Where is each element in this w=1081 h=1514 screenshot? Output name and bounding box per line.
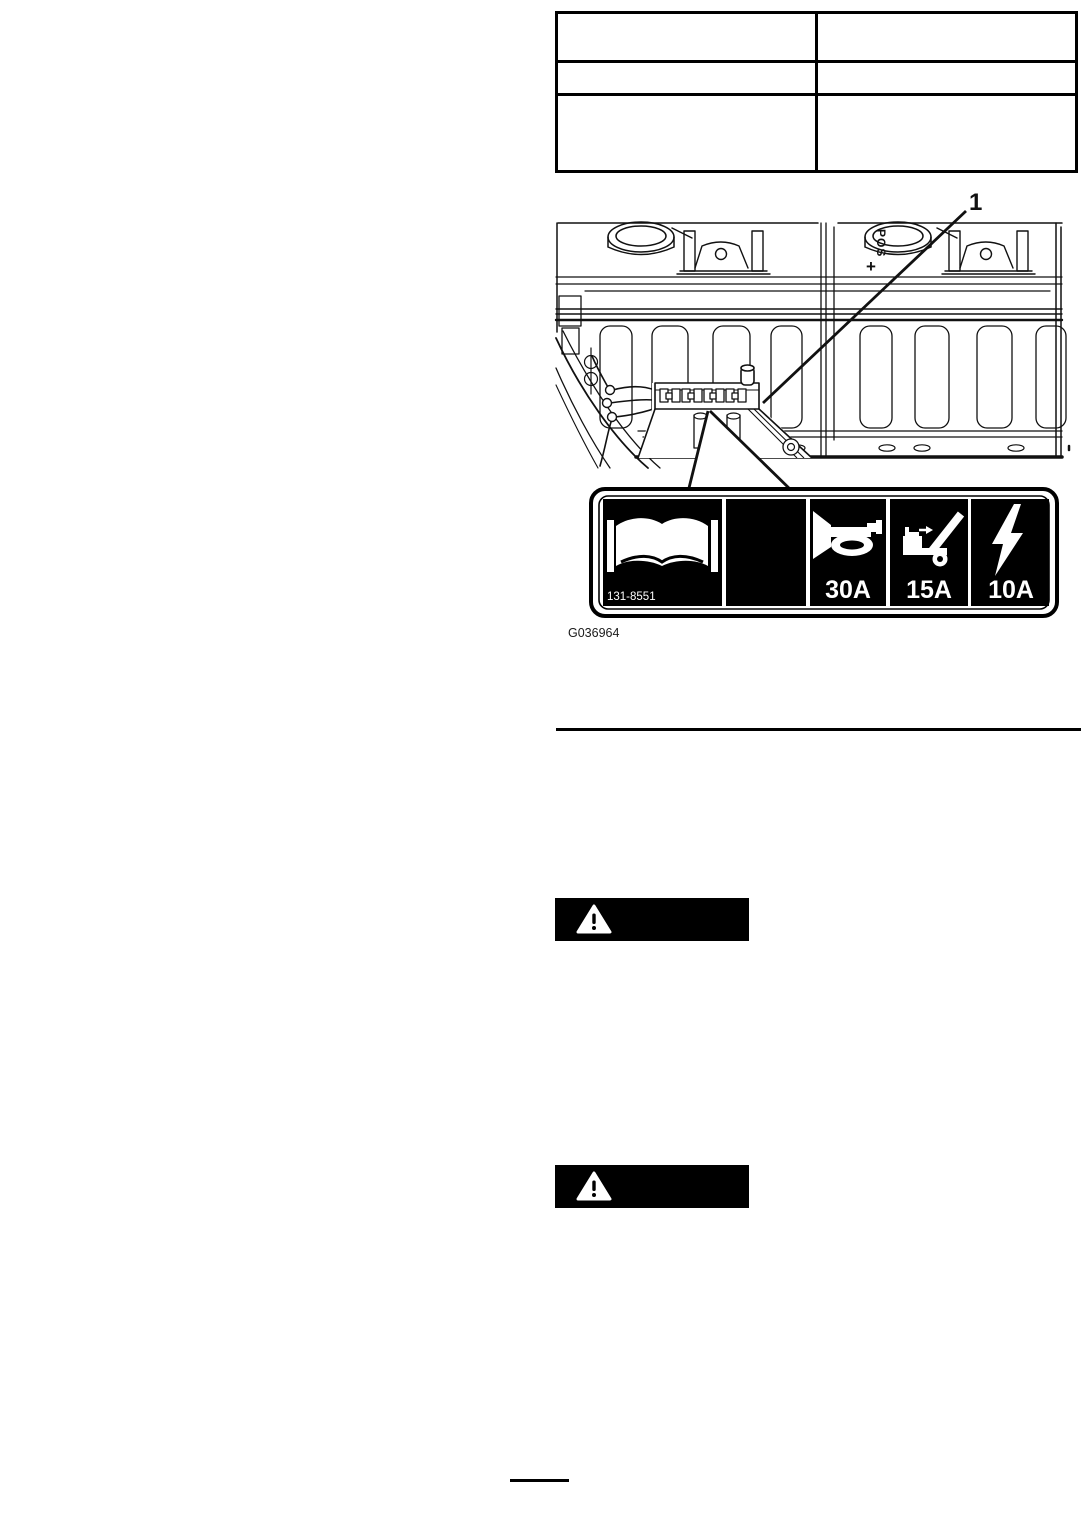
- spec-table-cell: [558, 63, 815, 93]
- spec-table-cell: [818, 14, 1075, 60]
- fuse-block-figure: 1 POS + 131-8551: [552, 188, 1081, 648]
- battery-compartment-illustration: [556, 222, 1069, 468]
- warning-banner: [555, 1165, 749, 1208]
- spec-table-cell: [818, 63, 1075, 93]
- spec-table-cell: [818, 96, 1075, 170]
- safety-alert-triangle-icon: [576, 1171, 612, 1202]
- callout-1-label: 1: [969, 189, 982, 216]
- spec-table: [555, 11, 1078, 173]
- pos-label: POS: [874, 229, 888, 257]
- decal-amp-10: 10A: [988, 576, 1034, 604]
- spec-table-cell: [558, 96, 815, 170]
- spec-table-cell: [558, 14, 815, 60]
- decal-amp-15: 15A: [906, 576, 952, 604]
- decal-cell-blank: [726, 499, 806, 606]
- manual-page: 1 POS + 131-8551: [0, 0, 1081, 1514]
- warning-banner: [555, 898, 749, 941]
- figure-caption: G036964: [568, 626, 619, 640]
- pos-plus-sign: +: [866, 257, 876, 276]
- fuse-decal: 131-8551 30A: [591, 489, 1057, 616]
- battery-pos-marking: POS +: [866, 229, 888, 276]
- footnote-line: [510, 1479, 569, 1482]
- safety-alert-triangle-icon: [576, 904, 612, 935]
- battery-clamp: [672, 228, 1035, 274]
- section-divider: [556, 728, 1081, 731]
- decal-amp-30: 30A: [825, 576, 871, 604]
- decal-part-number: 131-8551: [607, 591, 656, 603]
